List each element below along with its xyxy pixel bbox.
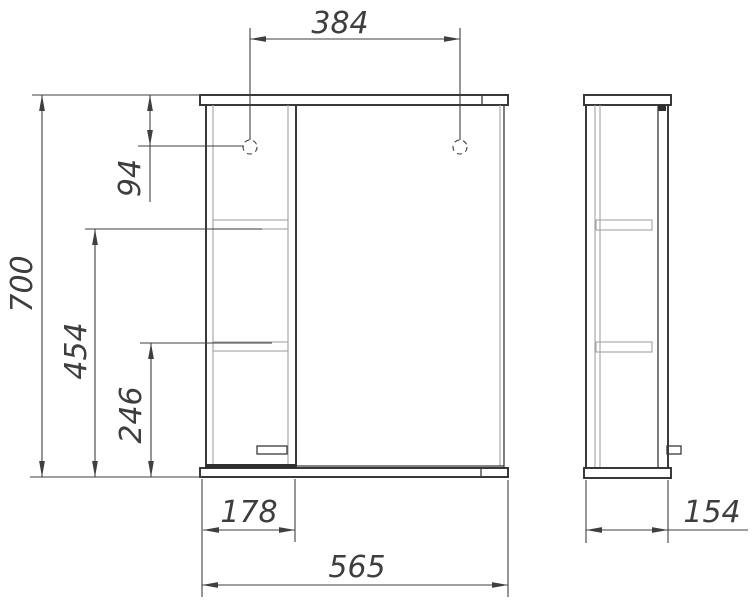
dim-384-label: 384 bbox=[311, 6, 368, 41]
front-top-panel bbox=[200, 95, 508, 105]
side-door-handle bbox=[667, 446, 681, 454]
side-top-bracket bbox=[658, 105, 666, 111]
side-top-panel bbox=[584, 95, 671, 105]
dim-154-label: 154 bbox=[683, 495, 740, 530]
dim-178-label: 178 bbox=[220, 495, 277, 530]
dim-454-label: 454 bbox=[59, 322, 94, 379]
mirror-cabinet-technical-drawing: 384 700 94 454 246 178 565 154 bbox=[0, 0, 752, 600]
side-bottom-panel bbox=[584, 468, 671, 478]
dim-246-label: 246 bbox=[114, 386, 149, 443]
front-shelf-upper bbox=[213, 220, 288, 229]
side-view bbox=[584, 95, 681, 478]
side-shelf-upper bbox=[596, 220, 652, 230]
mounting-hole-right bbox=[453, 140, 467, 154]
drawing-canvas: 384 700 94 454 246 178 565 154 bbox=[0, 0, 752, 600]
side-shelf-lower bbox=[596, 342, 652, 352]
dim-700-label: 700 bbox=[5, 255, 40, 312]
dim-94-label: 94 bbox=[113, 159, 148, 197]
front-bottom-panel bbox=[200, 468, 508, 477]
dim-565-label: 565 bbox=[328, 550, 385, 585]
front-view bbox=[200, 95, 508, 477]
front-door-handle bbox=[257, 446, 287, 454]
mounting-hole-left bbox=[243, 140, 257, 154]
